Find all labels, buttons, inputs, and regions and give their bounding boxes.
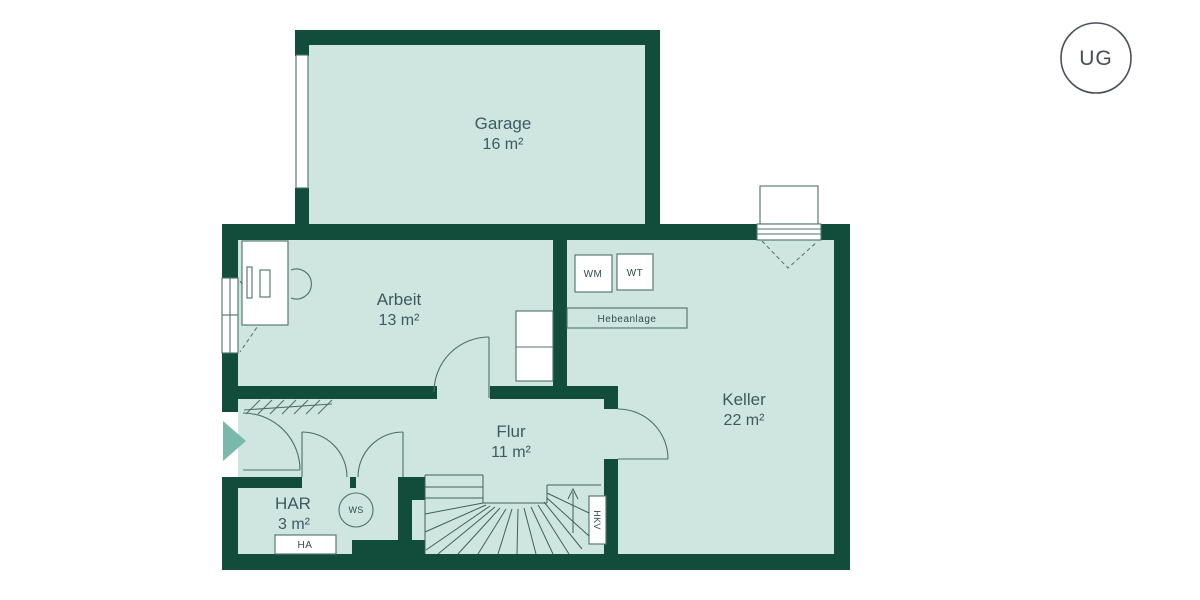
wall-garage-right	[645, 30, 660, 225]
room-garage-name: Garage	[475, 114, 532, 133]
wall-main-left-lower	[222, 477, 238, 570]
house-connection-label: HA	[298, 540, 313, 551]
wall-main-top	[222, 224, 850, 240]
washing-machine-label: WM	[584, 269, 603, 280]
wall-har-top-left	[238, 477, 302, 488]
desk	[242, 241, 288, 325]
window-keller	[757, 224, 821, 240]
wall-main-left-upper	[222, 224, 238, 278]
floor-areas	[238, 44, 834, 554]
floor-badge: UG	[1061, 23, 1131, 93]
lifting-station-label: Hebeanlage	[598, 314, 657, 325]
room-garage-floor	[308, 44, 645, 225]
room-flur-name: Flur	[496, 422, 526, 441]
room-garage-area: 16 m²	[483, 136, 525, 153]
floorplan-drawing: Garage 16 m² Arbeit 13 m² Keller 22 m² F…	[0, 0, 1200, 600]
wall-main-right	[834, 224, 850, 570]
wall-garage-top	[295, 30, 660, 45]
light-well	[760, 186, 818, 224]
wall-main-bottom	[222, 554, 850, 570]
wall-stair-corner	[412, 477, 425, 500]
wall-arbeit-keller	[553, 240, 567, 390]
wall-arbeit-flur-left	[238, 386, 437, 399]
wall-garage-left-stub-bottom	[295, 188, 309, 225]
water-softener-label: WS	[348, 505, 363, 515]
wall-keller-flur-stub	[604, 399, 618, 409]
room-arbeit-area: 13 m²	[379, 312, 421, 329]
room-flur-area: 11 m²	[491, 444, 531, 461]
room-keller-name: Keller	[722, 390, 766, 409]
room-har-area: 3 m²	[278, 516, 311, 533]
room-keller-area: 22 m²	[724, 412, 766, 429]
wall-main-left-middle	[222, 353, 238, 412]
wall-arbeit-flur-right	[490, 386, 618, 399]
wall-har-right	[398, 488, 412, 543]
room-har-name: HAR	[275, 494, 311, 513]
wall-stair-base-step	[352, 540, 425, 554]
dryer-label: WT	[627, 268, 644, 279]
room-arbeit-name: Arbeit	[377, 290, 422, 309]
garage-door	[296, 55, 308, 188]
shelf	[516, 311, 553, 381]
floorplan-page: Garage 16 m² Arbeit 13 m² Keller 22 m² F…	[0, 0, 1200, 600]
floor-badge-label: UG	[1079, 47, 1113, 70]
wall-har-top-center-stub	[350, 477, 356, 488]
wall-garage-left-stub-top	[295, 30, 309, 56]
heating-distributor-label: HKV	[592, 510, 602, 529]
